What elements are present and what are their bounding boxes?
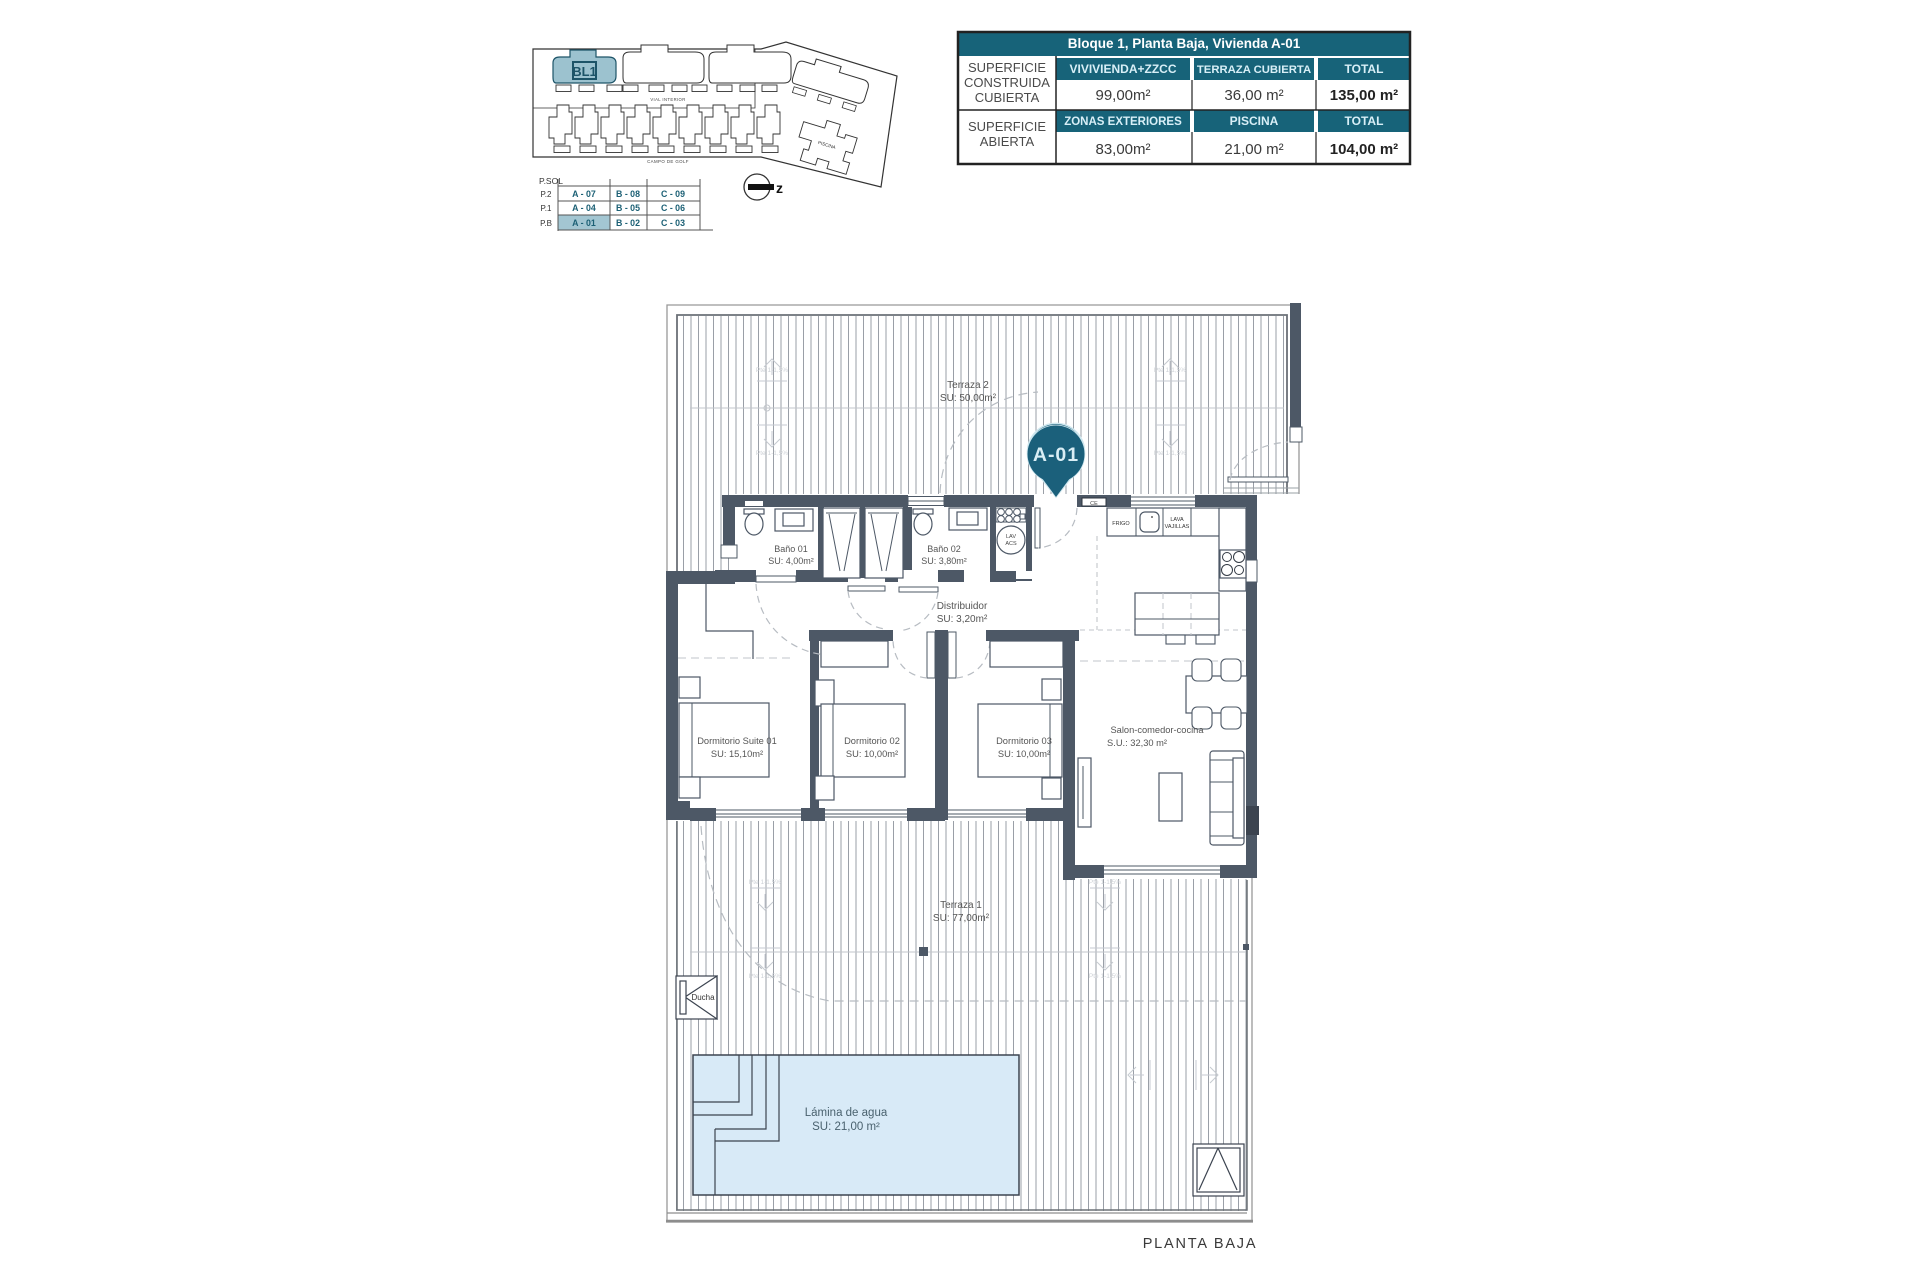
svg-text:ZONAS EXTERIORES: ZONAS EXTERIORES xyxy=(1064,116,1182,128)
svg-text:99,00m²: 99,00m² xyxy=(1095,87,1150,104)
svg-text:SU: 15,10m²: SU: 15,10m² xyxy=(711,749,763,759)
svg-text:VIVIVIENDA+ZZCC: VIVIVIENDA+ZZCC xyxy=(1069,62,1176,76)
svg-text:LAV: LAV xyxy=(1006,534,1016,540)
svg-text:SU: 3,80m²: SU: 3,80m² xyxy=(921,556,967,566)
svg-text:Pte 1-1,5%: Pte 1-1,5% xyxy=(749,879,781,886)
svg-text:Baño 02: Baño 02 xyxy=(927,544,961,554)
svg-text:Ducha: Ducha xyxy=(691,993,715,1002)
svg-text:83,00m²: 83,00m² xyxy=(1095,141,1150,158)
svg-text:SU: 21,00 m²: SU: 21,00 m² xyxy=(812,1121,880,1133)
svg-text:TERRAZA CUBIERTA: TERRAZA CUBIERTA xyxy=(1197,64,1311,76)
svg-text:FRIGO: FRIGO xyxy=(1112,521,1130,527)
svg-text:VAJILLAS: VAJILLAS xyxy=(1165,524,1190,530)
svg-text:TOTAL: TOTAL xyxy=(1345,62,1384,76)
svg-text:Dormitorio Suite 01: Dormitorio Suite 01 xyxy=(697,736,777,746)
svg-text:C - 06: C - 06 xyxy=(661,203,685,213)
svg-text:A - 07: A - 07 xyxy=(572,189,596,199)
svg-text:A-01: A-01 xyxy=(1033,444,1079,466)
svg-text:CUBIERTA: CUBIERTA xyxy=(975,90,1040,105)
svg-text:ABIERTA: ABIERTA xyxy=(980,134,1035,149)
svg-text:Pte 1-1,5%: Pte 1-1,5% xyxy=(1154,367,1186,374)
svg-text:Pte 1-1,5%: Pte 1-1,5% xyxy=(756,367,788,374)
svg-text:CE: CE xyxy=(1090,501,1098,507)
svg-text:A - 04: A - 04 xyxy=(572,203,596,213)
svg-text:PISCINA: PISCINA xyxy=(1230,114,1279,128)
svg-text:Pte 1-1,5%: Pte 1-1,5% xyxy=(749,973,781,980)
svg-text:z: z xyxy=(776,180,783,196)
svg-text:Dormitorio 03: Dormitorio 03 xyxy=(996,736,1052,746)
svg-text:BL1: BL1 xyxy=(572,64,597,79)
svg-text:SU: 3,20m²: SU: 3,20m² xyxy=(937,614,988,625)
svg-text:Distribuidor: Distribuidor xyxy=(937,601,988,612)
svg-text:Pte 1-1,5%: Pte 1-1,5% xyxy=(1089,973,1121,980)
svg-text:VIAL INTERIOR: VIAL INTERIOR xyxy=(650,97,685,102)
svg-text:Bloque 1, Planta Baja, Viviend: Bloque 1, Planta Baja, Vivienda A-01 xyxy=(1068,36,1301,51)
svg-text:CONSTRUIDA: CONSTRUIDA xyxy=(964,75,1050,90)
svg-text:Dormitorio 02: Dormitorio 02 xyxy=(844,736,900,746)
svg-text:SU: 4,00m²: SU: 4,00m² xyxy=(768,556,814,566)
svg-text:21,00 m²: 21,00 m² xyxy=(1224,141,1283,158)
svg-text:A - 01: A - 01 xyxy=(572,218,596,228)
svg-text:C - 03: C - 03 xyxy=(661,218,685,228)
svg-text:B - 08: B - 08 xyxy=(616,189,640,199)
svg-text:Pte 1-1,5%: Pte 1-1,5% xyxy=(756,450,788,457)
svg-text:Salon-comedor-cocina: Salon-comedor-cocina xyxy=(1110,725,1204,735)
svg-text:135,00 m²: 135,00 m² xyxy=(1330,87,1398,104)
svg-text:C - 09: C - 09 xyxy=(661,189,685,199)
svg-text:B - 02: B - 02 xyxy=(616,218,640,228)
svg-text:36,00 m²: 36,00 m² xyxy=(1224,87,1283,104)
svg-text:SU: 10,00m²: SU: 10,00m² xyxy=(998,749,1050,759)
svg-text:PLANTA BAJA: PLANTA BAJA xyxy=(1143,1236,1258,1252)
svg-text:P.B: P.B xyxy=(540,219,552,228)
svg-text:SU: 10,00m²: SU: 10,00m² xyxy=(846,749,898,759)
svg-text:B - 05: B - 05 xyxy=(616,203,640,213)
svg-text:Lámina de agua: Lámina de agua xyxy=(805,1107,888,1119)
svg-text:Pte 1-1,5%: Pte 1-1,5% xyxy=(1089,879,1121,886)
svg-text:SU: 50,00m²: SU: 50,00m² xyxy=(940,393,997,404)
svg-text:104,00 m²: 104,00 m² xyxy=(1330,141,1398,158)
svg-text:SUPERFICIE: SUPERFICIE xyxy=(968,119,1046,134)
svg-text:P.1: P.1 xyxy=(541,204,553,213)
svg-text:Pte 1-1,5%: Pte 1-1,5% xyxy=(1154,450,1186,457)
svg-text:LAVA: LAVA xyxy=(1170,517,1184,523)
svg-text:SUPERFICIE: SUPERFICIE xyxy=(968,60,1046,75)
svg-text:CAMPO DE GOLF: CAMPO DE GOLF xyxy=(647,159,689,164)
svg-text:S.U.: 32,30 m²: S.U.: 32,30 m² xyxy=(1107,738,1167,748)
svg-text:Terraza 2: Terraza 2 xyxy=(947,380,989,391)
svg-text:P.SOL: P.SOL xyxy=(539,176,563,186)
svg-text:ACS: ACS xyxy=(1005,541,1017,547)
svg-text:TOTAL: TOTAL xyxy=(1345,114,1384,128)
svg-text:Terraza 1: Terraza 1 xyxy=(940,900,982,911)
svg-text:Baño 01: Baño 01 xyxy=(774,544,808,554)
svg-text:SU: 77,00m²: SU: 77,00m² xyxy=(933,913,990,924)
svg-text:P.2: P.2 xyxy=(541,190,553,199)
